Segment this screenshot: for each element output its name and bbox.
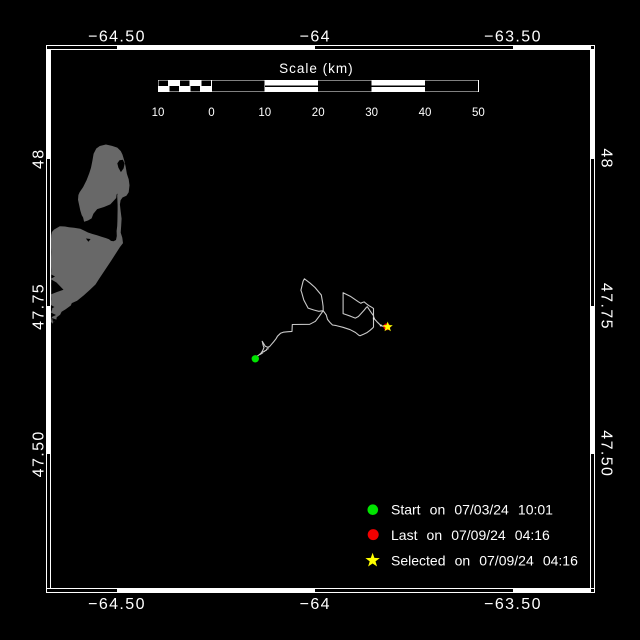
svg-text:48: 48 (597, 148, 614, 169)
svg-text:50: 50 (472, 107, 485, 119)
svg-text:−63.50: −63.50 (484, 29, 542, 46)
svg-text:48: 48 (31, 148, 48, 169)
svg-text:10: 10 (152, 107, 165, 119)
svg-text:−64: −64 (300, 596, 331, 613)
svg-text:−63.50: −63.50 (484, 596, 542, 613)
svg-text:Selected on 07/09/24 04:16: Selected on 07/09/24 04:16 (391, 553, 578, 569)
svg-text:40: 40 (419, 107, 432, 119)
svg-text:−64: −64 (300, 29, 331, 46)
svg-text:Last on 07/09/24 04:16: Last on 07/09/24 04:16 (391, 527, 550, 543)
svg-text:20: 20 (312, 107, 325, 119)
svg-text:30: 30 (365, 107, 378, 119)
svg-text:47.50: 47.50 (31, 430, 48, 477)
svg-text:Scale (km): Scale (km) (279, 61, 354, 76)
svg-text:47.75: 47.75 (31, 283, 48, 330)
svg-text:−64.50: −64.50 (88, 29, 146, 46)
svg-text:47.75: 47.75 (597, 283, 614, 330)
svg-text:−64.50: −64.50 (88, 596, 146, 613)
svg-text:Start on 07/03/24 10:01: Start on 07/03/24 10:01 (391, 502, 553, 518)
svg-text:0: 0 (208, 107, 214, 119)
svg-text:47.50: 47.50 (597, 430, 614, 477)
svg-text:10: 10 (258, 107, 271, 119)
